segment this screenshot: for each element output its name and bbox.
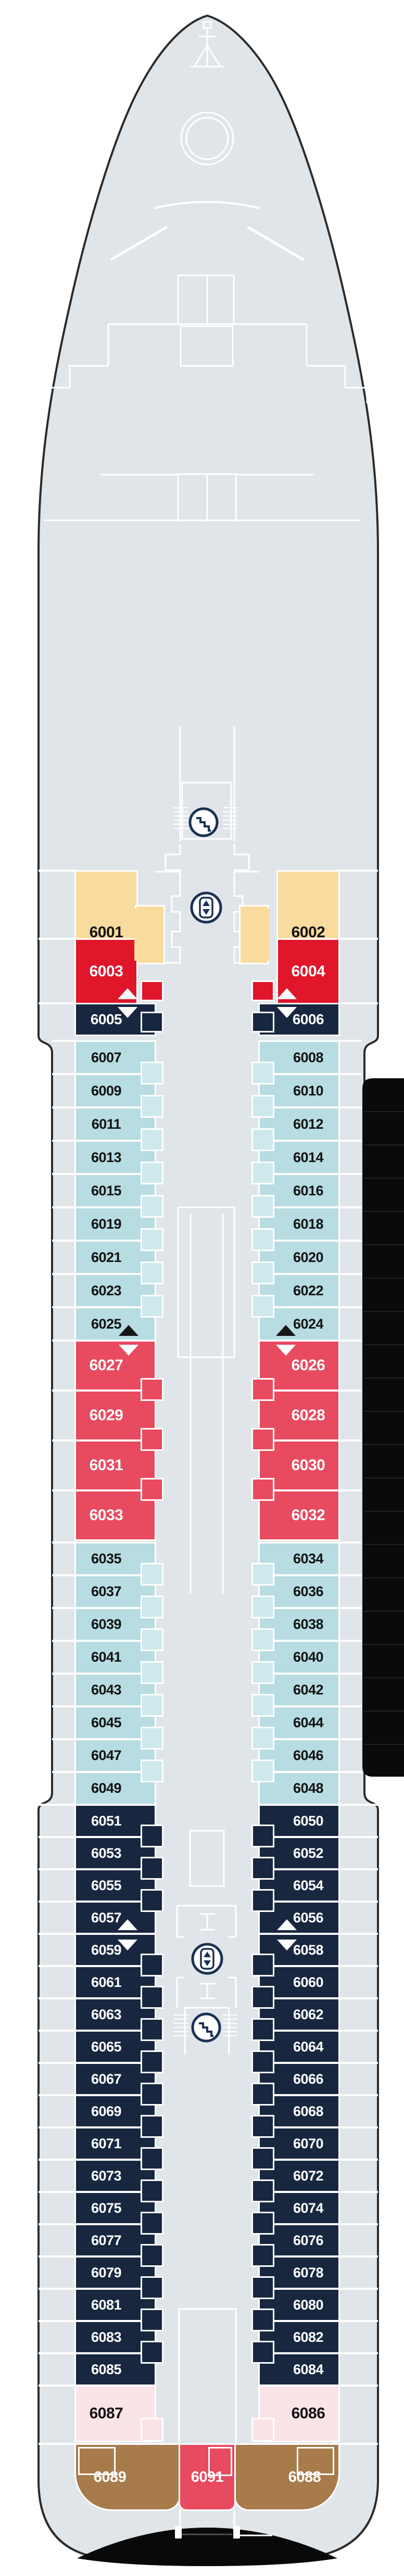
- cabin-number: 6071: [76, 2128, 136, 2159]
- deck-gutter-separator: [52, 1673, 76, 1707]
- connecting-cabins-arrow-down: [277, 1007, 297, 1018]
- deck-gutter-separator: [39, 1804, 76, 1838]
- cabin-number: 6052: [278, 1838, 338, 1868]
- deck-gutter-separator: [338, 2255, 378, 2290]
- cabin-entry-tab: [251, 2050, 274, 2073]
- cabin-entry-tab: [141, 1095, 163, 1118]
- deck-gutter-separator: [52, 1273, 76, 1308]
- cabin-number: 6054: [278, 1870, 338, 1901]
- cabin-number: 6055: [76, 1870, 136, 1901]
- cabin-number: 6086: [278, 2387, 338, 2441]
- deck-gutter-separator: [39, 1836, 76, 1870]
- deck-gutter-separator: [39, 1901, 76, 1935]
- deck-gutter-separator: [338, 1106, 362, 1142]
- cabin-number: 6050: [278, 1806, 338, 1836]
- deck-gutter-separator: [338, 2159, 378, 2193]
- cabin-number: 6007: [76, 1042, 136, 1073]
- deck-gutter-separator: [338, 1738, 362, 1773]
- connecting-cabins-arrow-up: [118, 1919, 137, 1930]
- connecting-cabins-arrow-down: [119, 1345, 138, 1356]
- cabin-number: 6034: [278, 1544, 338, 1574]
- cabin-entry-tab: [251, 2276, 274, 2299]
- deck-gutter-separator: [52, 1439, 76, 1491]
- deck-gutter-separator: [338, 1997, 378, 2032]
- cabin-entry-tab: [251, 1727, 274, 1750]
- cabin-entry-tab: [251, 1478, 274, 1501]
- deck-gutter-separator: [39, 870, 76, 940]
- cabin-entry-tab: [141, 1986, 163, 2009]
- deck-gutter-separator: [52, 1640, 76, 1675]
- cabin-number: 6019: [76, 1208, 136, 1240]
- ship-deck-plan: 6001600260036004600560066007600860096010…: [0, 0, 404, 2576]
- connecting-cabins-arrow-up: [277, 988, 297, 999]
- deck-gutter-separator: [338, 1439, 362, 1491]
- deck-gutter-separator: [338, 938, 378, 1005]
- cabin-number: 6068: [278, 2096, 338, 2126]
- cabin-number: 6082: [278, 2322, 338, 2352]
- deck-gutter-separator: [338, 1002, 378, 1037]
- cabin-number: 6049: [76, 1773, 136, 1804]
- cabin-number: 6043: [76, 1675, 136, 1705]
- cabin-entry-tab: [141, 1378, 163, 1401]
- cabin-6001-extension: [136, 907, 163, 963]
- deck-gutter-separator: [39, 2062, 76, 2096]
- cabin-entry-tab: [251, 2418, 274, 2442]
- cabin-number: 6074: [278, 2193, 338, 2223]
- cabin-number: 6067: [76, 2064, 136, 2094]
- cabin-number: 6070: [278, 2128, 338, 2159]
- cabin-number: 6018: [278, 1208, 338, 1240]
- deck-gutter-separator: [39, 2223, 76, 2258]
- deck-gutter-separator: [39, 2159, 76, 2193]
- deck-gutter-separator: [338, 1273, 362, 1308]
- connecting-cabins-arrow-down: [118, 1940, 137, 1950]
- deck-gutter-separator: [338, 2223, 378, 2258]
- cabin-entry-tab: [141, 2212, 163, 2235]
- cabin-entry-tab: [251, 2147, 274, 2170]
- cabin-entry-tab: [141, 1295, 163, 1318]
- cabin-entry-tab: [141, 2083, 163, 2106]
- cabin-number: 6063: [76, 1999, 136, 2030]
- deck-gutter-separator: [39, 1997, 76, 2032]
- cabin-entry-tab: [251, 2341, 274, 2364]
- cabin-entry-tab: [251, 1228, 274, 1251]
- cabin-number: 6008: [278, 1042, 338, 1073]
- deck-gutter-separator: [52, 1607, 76, 1642]
- deck-gutter-separator: [39, 2191, 76, 2225]
- cabin-number: 6031: [76, 1442, 136, 1489]
- deck-gutter-separator: [338, 1705, 362, 1740]
- cabin-number: 6009: [76, 1075, 136, 1106]
- cabin-number: 6028: [278, 1392, 338, 1439]
- deck-gutter-separator: [338, 1771, 362, 1806]
- cabin-number: 6084: [278, 2354, 338, 2384]
- cabin-entry-tab: [141, 1062, 163, 1085]
- deck-gutter-separator: [338, 2352, 378, 2387]
- cabin-number: 6087: [76, 2387, 136, 2441]
- cabin-entry-tab: [141, 1857, 163, 1880]
- connecting-cabins-arrow-up: [276, 1325, 296, 1336]
- cabin-entry-tab: [251, 1378, 274, 1401]
- cabin-number: 6035: [76, 1544, 136, 1574]
- deck-gutter-separator: [39, 1965, 76, 1999]
- deck-gutter-separator: [39, 1868, 76, 1903]
- cabin-entry-tab: [141, 1563, 163, 1586]
- cabin-number: 6041: [76, 1642, 136, 1673]
- cabin-entry-tab: [141, 980, 163, 1001]
- seam-patch: [134, 909, 140, 961]
- cabin-entry-tab: [141, 1261, 163, 1284]
- cabin-number: 6062: [278, 1999, 338, 2030]
- cabin-entry-tab: [251, 1825, 274, 1847]
- deck-gutter-separator: [52, 1173, 76, 1208]
- deck-gutter-separator: [338, 1607, 362, 1642]
- cabin-entry-tab: [141, 1478, 163, 1501]
- cabin-entry-tab: [251, 1661, 274, 1684]
- cabin-entry-tab: [251, 1986, 274, 2009]
- cabin-number: 6029: [76, 1392, 136, 1439]
- deck-gutter-separator: [338, 1206, 362, 1242]
- cabin-entry-tab: [251, 1759, 274, 1782]
- room-divider-outline: [208, 2447, 232, 2476]
- cabin-number: 6046: [278, 1740, 338, 1771]
- cabin-entry-tab: [251, 2179, 274, 2202]
- cabin-6001[interactable]: 6001: [76, 872, 136, 938]
- deck-gutter-separator: [52, 1541, 76, 1576]
- deck-gutter-separator: [338, 2320, 378, 2354]
- connecting-cabins-arrow-down: [276, 1345, 296, 1356]
- deck-gutter-separator: [39, 2094, 76, 2128]
- cabin-entry-tab: [141, 2341, 163, 2364]
- cabin-number: 6045: [76, 1707, 136, 1738]
- deck-gutter-separator: [52, 1738, 76, 1773]
- deck-gutter-separator: [338, 1836, 378, 1870]
- cabin-entry-tab: [141, 2244, 163, 2267]
- deck-gutter-separator: [338, 1673, 362, 1707]
- cabin-entry-tab: [141, 1162, 163, 1184]
- cabin-number: 6016: [278, 1175, 338, 1206]
- deck-gutter-separator: [39, 2384, 76, 2443]
- deck-gutter-separator: [338, 1804, 378, 1838]
- deck-gutter-separator: [39, 2320, 76, 2354]
- cabin-number: 6015: [76, 1175, 136, 1206]
- cabin-entry-tab: [251, 1128, 274, 1151]
- deck-gutter-separator: [338, 2191, 378, 2225]
- elevator-icon: [189, 890, 223, 927]
- cabin-entry-tab: [251, 2244, 274, 2267]
- deck-gutter-separator: [338, 1173, 362, 1208]
- seam-patch: [264, 909, 270, 961]
- cabin-number: 6053: [76, 1838, 136, 1868]
- cabin-entry-tab: [251, 2018, 274, 2041]
- cabin-entry-tab: [141, 1661, 163, 1684]
- cabin-entry-tab: [141, 1596, 163, 1618]
- elevator-icon: [190, 1942, 224, 1979]
- deck-gutter-separator: [338, 1965, 378, 1999]
- cabin-number: 6079: [76, 2258, 136, 2288]
- cabin-number: 6076: [278, 2225, 338, 2255]
- connecting-cabins-arrow-down: [118, 1007, 137, 1018]
- cabin-entry-tab: [141, 1195, 163, 1218]
- cabin-number: 6051: [76, 1806, 136, 1836]
- deck-gutter-separator: [52, 1306, 76, 1342]
- deck-gutter-separator: [39, 1002, 76, 1037]
- deck-gutter-separator: [338, 1868, 378, 1903]
- deck-gutter-separator: [338, 2443, 378, 2513]
- room-divider-outline: [78, 2447, 116, 2475]
- cabin-entry-tab: [141, 1628, 163, 1651]
- cabin-entry-tab: [251, 1563, 274, 1586]
- deck-gutter-separator: [39, 938, 76, 1005]
- cabin-entry-tab: [141, 1012, 163, 1032]
- cabin-number: 6001: [76, 872, 136, 938]
- cabin-number: 6075: [76, 2193, 136, 2223]
- room-divider-outline: [297, 2447, 334, 2475]
- deck-gutter-separator: [338, 2030, 378, 2064]
- cabin-number: 6022: [278, 1275, 338, 1306]
- cabin-6002[interactable]: 6002: [278, 872, 338, 938]
- cabin-number: 6069: [76, 2096, 136, 2126]
- cabin-entry-tab: [141, 1228, 163, 1251]
- deck-gutter-separator: [338, 1933, 378, 1967]
- deck-gutter-separator: [52, 1705, 76, 1740]
- cabin-number: 6077: [76, 2225, 136, 2255]
- cabin-6002-extension: [241, 907, 268, 963]
- deck-gutter-separator: [39, 2255, 76, 2290]
- deck-gutter-separator: [52, 1206, 76, 1242]
- cabin-number: 6040: [278, 1642, 338, 1673]
- deck-gutter-separator: [338, 2288, 378, 2322]
- cabin-number: 6061: [76, 1967, 136, 1997]
- cabin-entry-tab: [251, 1857, 274, 1880]
- cabin-entry-tab: [141, 1759, 163, 1782]
- deck-gutter-separator: [338, 2126, 378, 2161]
- cabin-number: 6011: [76, 1108, 136, 1140]
- cabin-number: 6072: [278, 2161, 338, 2191]
- deck-gutter-separator: [338, 2384, 378, 2443]
- deck-gutter-separator: [338, 1640, 362, 1675]
- stairs-icon: [190, 2011, 222, 2046]
- cabin-entry-tab: [251, 1261, 274, 1284]
- cabin-entry-tab: [251, 1062, 274, 1085]
- deck-gutter-separator: [52, 1040, 76, 1075]
- cabin-number: 6002: [278, 872, 338, 938]
- cabin-number: 6039: [76, 1609, 136, 1640]
- cabin-number: 6064: [278, 2032, 338, 2062]
- cabin-number: 6078: [278, 2258, 338, 2288]
- cabin-number: 6042: [278, 1675, 338, 1705]
- cabin-number: 6048: [278, 1773, 338, 1804]
- cabin-entry-tab: [251, 1628, 274, 1651]
- cabin-number: 6023: [76, 1275, 136, 1306]
- cabin-entry-tab: [141, 2018, 163, 2041]
- connecting-cabins-arrow-up: [118, 988, 137, 999]
- cabin-entry-tab: [141, 2309, 163, 2331]
- cabin-entry-tab: [251, 2309, 274, 2331]
- cabin-entry-tab: [251, 2115, 274, 2138]
- cabin-entry-tab: [141, 1128, 163, 1151]
- deck-gutter-separator: [52, 1106, 76, 1142]
- cabin-number: 6014: [278, 1142, 338, 1173]
- cabin-number: 6013: [76, 1142, 136, 1173]
- lifeboat-band: [362, 1078, 404, 1777]
- deck-gutter-separator: [39, 2443, 76, 2513]
- deck-gutter-separator: [338, 1340, 362, 1392]
- cabin-number: 6044: [278, 1707, 338, 1738]
- connecting-cabins-arrow-up: [119, 1325, 138, 1336]
- cabin-entry-tab: [251, 980, 274, 1001]
- cabin-entry-tab: [141, 1825, 163, 1847]
- cabin-entry-tab: [251, 1012, 274, 1032]
- deck-gutter-separator: [338, 1389, 362, 1442]
- deck-gutter-separator: [39, 1933, 76, 1967]
- cabin-entry-tab: [251, 1195, 274, 1218]
- stairs-icon: [187, 806, 220, 841]
- deck-gutter-separator: [39, 2126, 76, 2161]
- deck-gutter-separator: [52, 1140, 76, 1175]
- deck-gutter-separator: [338, 1073, 362, 1108]
- deck-gutter-separator: [338, 2094, 378, 2128]
- cabin-number: 6020: [278, 1242, 338, 1273]
- deck-gutter-separator: [52, 1771, 76, 1806]
- cabin-number: 6032: [278, 1491, 338, 1539]
- cabin-number: 6012: [278, 1108, 338, 1140]
- deck-gutter-separator: [338, 2062, 378, 2096]
- cabin-number: 6066: [278, 2064, 338, 2094]
- deck-gutter-separator: [52, 1489, 76, 1541]
- cabin-number: 6030: [278, 1442, 338, 1489]
- cabin-entry-tab: [141, 2115, 163, 2138]
- deck-gutter-separator: [52, 1240, 76, 1275]
- deck-gutter-separator: [338, 1140, 362, 1175]
- cabin-number: 6038: [278, 1609, 338, 1640]
- cabin-number: 6065: [76, 2032, 136, 2062]
- cabin-number: 6073: [76, 2161, 136, 2191]
- cabin-number: 6060: [278, 1967, 338, 1997]
- cabin-entry-tab: [141, 2276, 163, 2299]
- deck-gutter-separator: [338, 1040, 362, 1075]
- cabin-entry-tab: [141, 1428, 163, 1451]
- deck-gutter-separator: [338, 1901, 378, 1935]
- cabin-entry-tab: [251, 1428, 274, 1451]
- cabin-entry-tab: [251, 1889, 274, 1912]
- deck-gutter-separator: [39, 2288, 76, 2322]
- cabin-number: 6033: [76, 1491, 136, 1539]
- cabin-entry-tab: [141, 2147, 163, 2170]
- deck-gutter-separator: [338, 1541, 362, 1576]
- deck-gutter-separator: [338, 1240, 362, 1275]
- cabin-number: 6085: [76, 2354, 136, 2384]
- cabin-number: 6081: [76, 2290, 136, 2320]
- cabin-entry-tab: [251, 1954, 274, 1976]
- cabin-entry-tab: [251, 2083, 274, 2106]
- connecting-cabins-arrow-down: [277, 1940, 297, 1950]
- cabin-entry-tab: [251, 1095, 274, 1118]
- cabin-entry-tab: [141, 2418, 163, 2442]
- cabin-entry-tab: [251, 1295, 274, 1318]
- deck-gutter-separator: [338, 1306, 362, 1342]
- cabin-number: 6083: [76, 2322, 136, 2352]
- deck-gutter-separator: [338, 1574, 362, 1609]
- cabin-entry-tab: [141, 2179, 163, 2202]
- cabin-number: 6010: [278, 1075, 338, 1106]
- deck-gutter-separator: [52, 1340, 76, 1392]
- deck-gutter-separator: [39, 2030, 76, 2064]
- deck-gutter-separator: [338, 1489, 362, 1541]
- cabin-number: 6036: [278, 1576, 338, 1607]
- cabin-entry-tab: [141, 2050, 163, 2073]
- cabin-number: 6080: [278, 2290, 338, 2320]
- connecting-cabins-arrow-up: [277, 1919, 297, 1930]
- cabin-number: 6037: [76, 1576, 136, 1607]
- deck-gutter-separator: [52, 1574, 76, 1609]
- cabin-number: 6047: [76, 1740, 136, 1771]
- cabin-entry-tab: [141, 1694, 163, 1717]
- cabin-entry-tab: [251, 1694, 274, 1717]
- deck-gutter-separator: [338, 870, 378, 940]
- cabin-entry-tab: [251, 2212, 274, 2235]
- deck-gutter-separator: [52, 1073, 76, 1108]
- cabin-entry-tab: [141, 1889, 163, 1912]
- deck-gutter-separator: [52, 1389, 76, 1442]
- deck-gutter-separator: [39, 2352, 76, 2387]
- cabin-entry-tab: [251, 1162, 274, 1184]
- cabin-number: 6021: [76, 1242, 136, 1273]
- cabin-entry-tab: [251, 1596, 274, 1618]
- cabin-entry-tab: [141, 1727, 163, 1750]
- cabin-entry-tab: [141, 1954, 163, 1976]
